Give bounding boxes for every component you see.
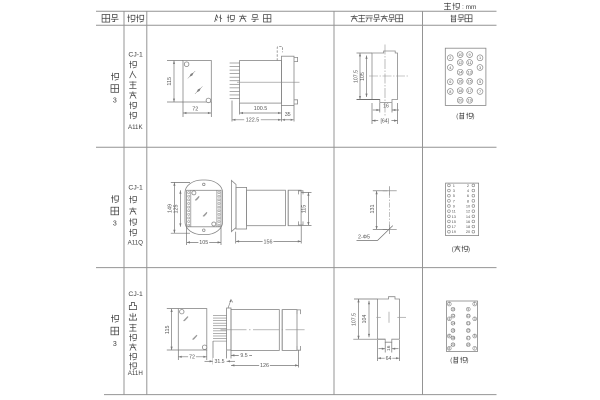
svg-text:115: 115 [167, 77, 173, 86]
svg-text:9: 9 [469, 53, 471, 57]
svg-text:): ) [473, 114, 475, 120]
svg-text:19: 19 [452, 229, 456, 234]
svg-text:3: 3 [474, 317, 476, 321]
svg-text:5: 5 [479, 80, 481, 84]
svg-text:CJ-1: CJ-1 [128, 291, 143, 298]
svg-text:3: 3 [113, 221, 117, 228]
svg-text:4: 4 [449, 66, 451, 70]
svg-text:11: 11 [468, 61, 472, 65]
svg-text:18: 18 [458, 89, 462, 93]
svg-text:19: 19 [466, 343, 470, 347]
svg-text:3: 3 [113, 98, 117, 105]
svg-text:8: 8 [449, 90, 451, 94]
svg-text:16: 16 [458, 80, 462, 84]
svg-text:A11H: A11H [128, 370, 143, 377]
svg-text:156: 156 [264, 239, 273, 245]
svg-text:31.5: 31.5 [214, 359, 224, 365]
svg-text:16: 16 [451, 329, 455, 333]
svg-text:12: 12 [451, 314, 455, 318]
svg-text:115: 115 [302, 205, 308, 214]
svg-text:107.5: 107.5 [352, 313, 358, 326]
svg-text:13: 13 [467, 71, 471, 75]
svg-text:35: 35 [285, 112, 291, 118]
svg-text:20: 20 [458, 99, 462, 103]
svg-text:3: 3 [479, 66, 481, 70]
svg-text:20: 20 [451, 343, 455, 347]
svg-text:105: 105 [360, 72, 366, 81]
svg-text:8: 8 [448, 347, 450, 351]
svg-text:17: 17 [467, 89, 471, 93]
svg-text:14: 14 [458, 71, 462, 75]
svg-text:19: 19 [467, 99, 471, 103]
svg-text:10: 10 [451, 307, 455, 311]
svg-text:(: ( [450, 358, 452, 364]
svg-text:): ) [467, 358, 469, 364]
svg-text:15: 15 [466, 329, 470, 333]
svg-text:64: 64 [386, 356, 392, 362]
svg-text:): ) [468, 247, 470, 253]
svg-text:13: 13 [466, 321, 470, 325]
svg-text:2-Φ5: 2-Φ5 [358, 235, 370, 241]
svg-text:11: 11 [467, 314, 471, 318]
svg-text:125: 125 [174, 205, 180, 214]
svg-text:16: 16 [383, 104, 389, 110]
svg-text:3: 3 [113, 341, 117, 348]
svg-text:105: 105 [199, 240, 208, 246]
svg-text:6: 6 [449, 80, 451, 84]
svg-text:16: 16 [386, 345, 392, 351]
svg-text:15: 15 [467, 80, 471, 84]
svg-text:100.5: 100.5 [254, 106, 268, 112]
svg-text:6: 6 [448, 334, 450, 338]
svg-text:(: ( [452, 247, 454, 253]
svg-text:9: 9 [467, 307, 469, 311]
svg-text:122.5: 122.5 [246, 118, 260, 124]
svg-text:20: 20 [466, 229, 471, 234]
svg-text:107.5: 107.5 [353, 70, 359, 83]
svg-text:2: 2 [449, 56, 451, 60]
svg-text:10: 10 [458, 53, 462, 57]
svg-text:(: ( [456, 114, 458, 120]
svg-text:17: 17 [466, 336, 470, 340]
svg-text:14: 14 [451, 321, 455, 325]
svg-text:115: 115 [165, 326, 171, 335]
svg-text:CJ-1: CJ-1 [128, 185, 143, 192]
svg-text:72: 72 [189, 355, 195, 361]
svg-text:9.5: 9.5 [240, 353, 247, 359]
svg-text:1: 1 [479, 56, 481, 60]
svg-text:1: 1 [474, 302, 476, 306]
svg-text:104: 104 [362, 315, 368, 324]
svg-text:5: 5 [474, 334, 476, 338]
svg-text:7: 7 [474, 347, 476, 351]
svg-text:A11K: A11K [128, 124, 144, 131]
svg-text:12: 12 [458, 61, 462, 65]
svg-text:mm: mm [466, 4, 477, 11]
svg-text:18: 18 [451, 336, 455, 340]
svg-text:2: 2 [448, 302, 450, 306]
svg-text::: : [462, 5, 464, 11]
svg-text:[64]: [64] [380, 118, 389, 124]
svg-text:A11Q: A11Q [128, 239, 144, 246]
svg-text:CJ-1: CJ-1 [128, 52, 143, 59]
svg-text:4: 4 [448, 317, 450, 321]
svg-text:126: 126 [260, 363, 269, 369]
svg-text:131: 131 [370, 205, 376, 214]
svg-text:7: 7 [479, 90, 481, 94]
svg-text:72: 72 [192, 107, 198, 113]
